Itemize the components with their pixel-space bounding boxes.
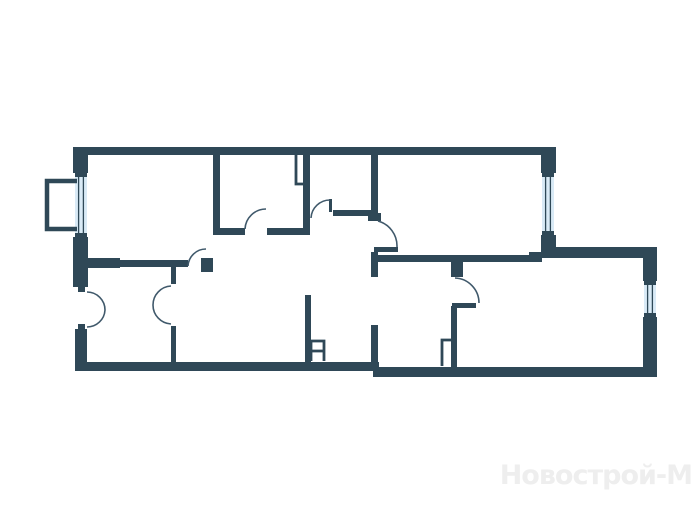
wall-shaft-stub (303, 155, 310, 235)
door-jamb-notch (78, 324, 85, 329)
floorplan-svg (0, 0, 700, 525)
door-swing-room2-leaf-bottom (153, 305, 171, 324)
wall-room2-divider-bottom (171, 326, 176, 362)
pier-left-mid (73, 237, 88, 287)
outer-wall-right-lower (643, 317, 657, 377)
door-swing-bathroom (455, 278, 479, 303)
door-swing-room2-leaf-top (153, 286, 171, 305)
wall-living-bottom (378, 255, 542, 262)
outer-wall-top (73, 147, 555, 155)
door-jamb (201, 258, 213, 272)
window-bottom-right (644, 281, 656, 317)
window-top-right-cap (542, 173, 554, 177)
door-jamb (451, 261, 463, 277)
window-top-right (542, 173, 554, 235)
wall-hall-upper (333, 210, 373, 216)
door-swing-balcony-leaf-top (87, 292, 105, 310)
wall-kitchen-bottom-left (220, 228, 245, 235)
door-swing-kitchen (245, 209, 266, 229)
door-jamb-notch (78, 287, 85, 292)
wall-room1-bottom-thick (88, 258, 120, 268)
window-top-right-cap (542, 231, 554, 235)
vent-shaft-bath (442, 340, 451, 366)
door-swing-hall-upper (311, 200, 330, 218)
watermark-text: Новострой-М (500, 460, 692, 491)
vent-shaft-top (296, 155, 303, 184)
wall-bath-partition (451, 306, 457, 367)
wall-kitchen-bottom-right (267, 228, 308, 235)
window-bottom-right-cap (644, 281, 656, 285)
outer-wall-bottom-right (373, 367, 657, 377)
window-left-cap (75, 233, 87, 237)
outer-wall-bottom-left (75, 362, 379, 371)
wall-room1-right (213, 147, 220, 235)
window-left-cap (75, 173, 87, 177)
door-jamb (368, 213, 381, 221)
balcony-outline (47, 181, 77, 229)
vent-shaft-mid (311, 341, 324, 361)
floorplan-canvas: Новострой-М (0, 0, 700, 525)
wall-hall-right (371, 155, 378, 215)
outer-wall-top-right-sect (555, 247, 657, 258)
door-jamb-tick (374, 247, 398, 252)
window-bottom-right-cap (644, 313, 656, 317)
wall-room1-bottom (120, 260, 188, 267)
pier-above-tr-window (541, 147, 556, 173)
wall-hall-stub-lower (371, 252, 378, 277)
wall-room2-divider-top (171, 262, 176, 284)
door-jamb-tick (329, 199, 332, 212)
door-swing-living (378, 221, 397, 247)
wall-hall-lower (371, 325, 378, 367)
door-swing-balcony-leaf-bottom (87, 310, 105, 327)
pier-under-tr-window (541, 235, 556, 258)
pier-top-left (73, 147, 88, 173)
